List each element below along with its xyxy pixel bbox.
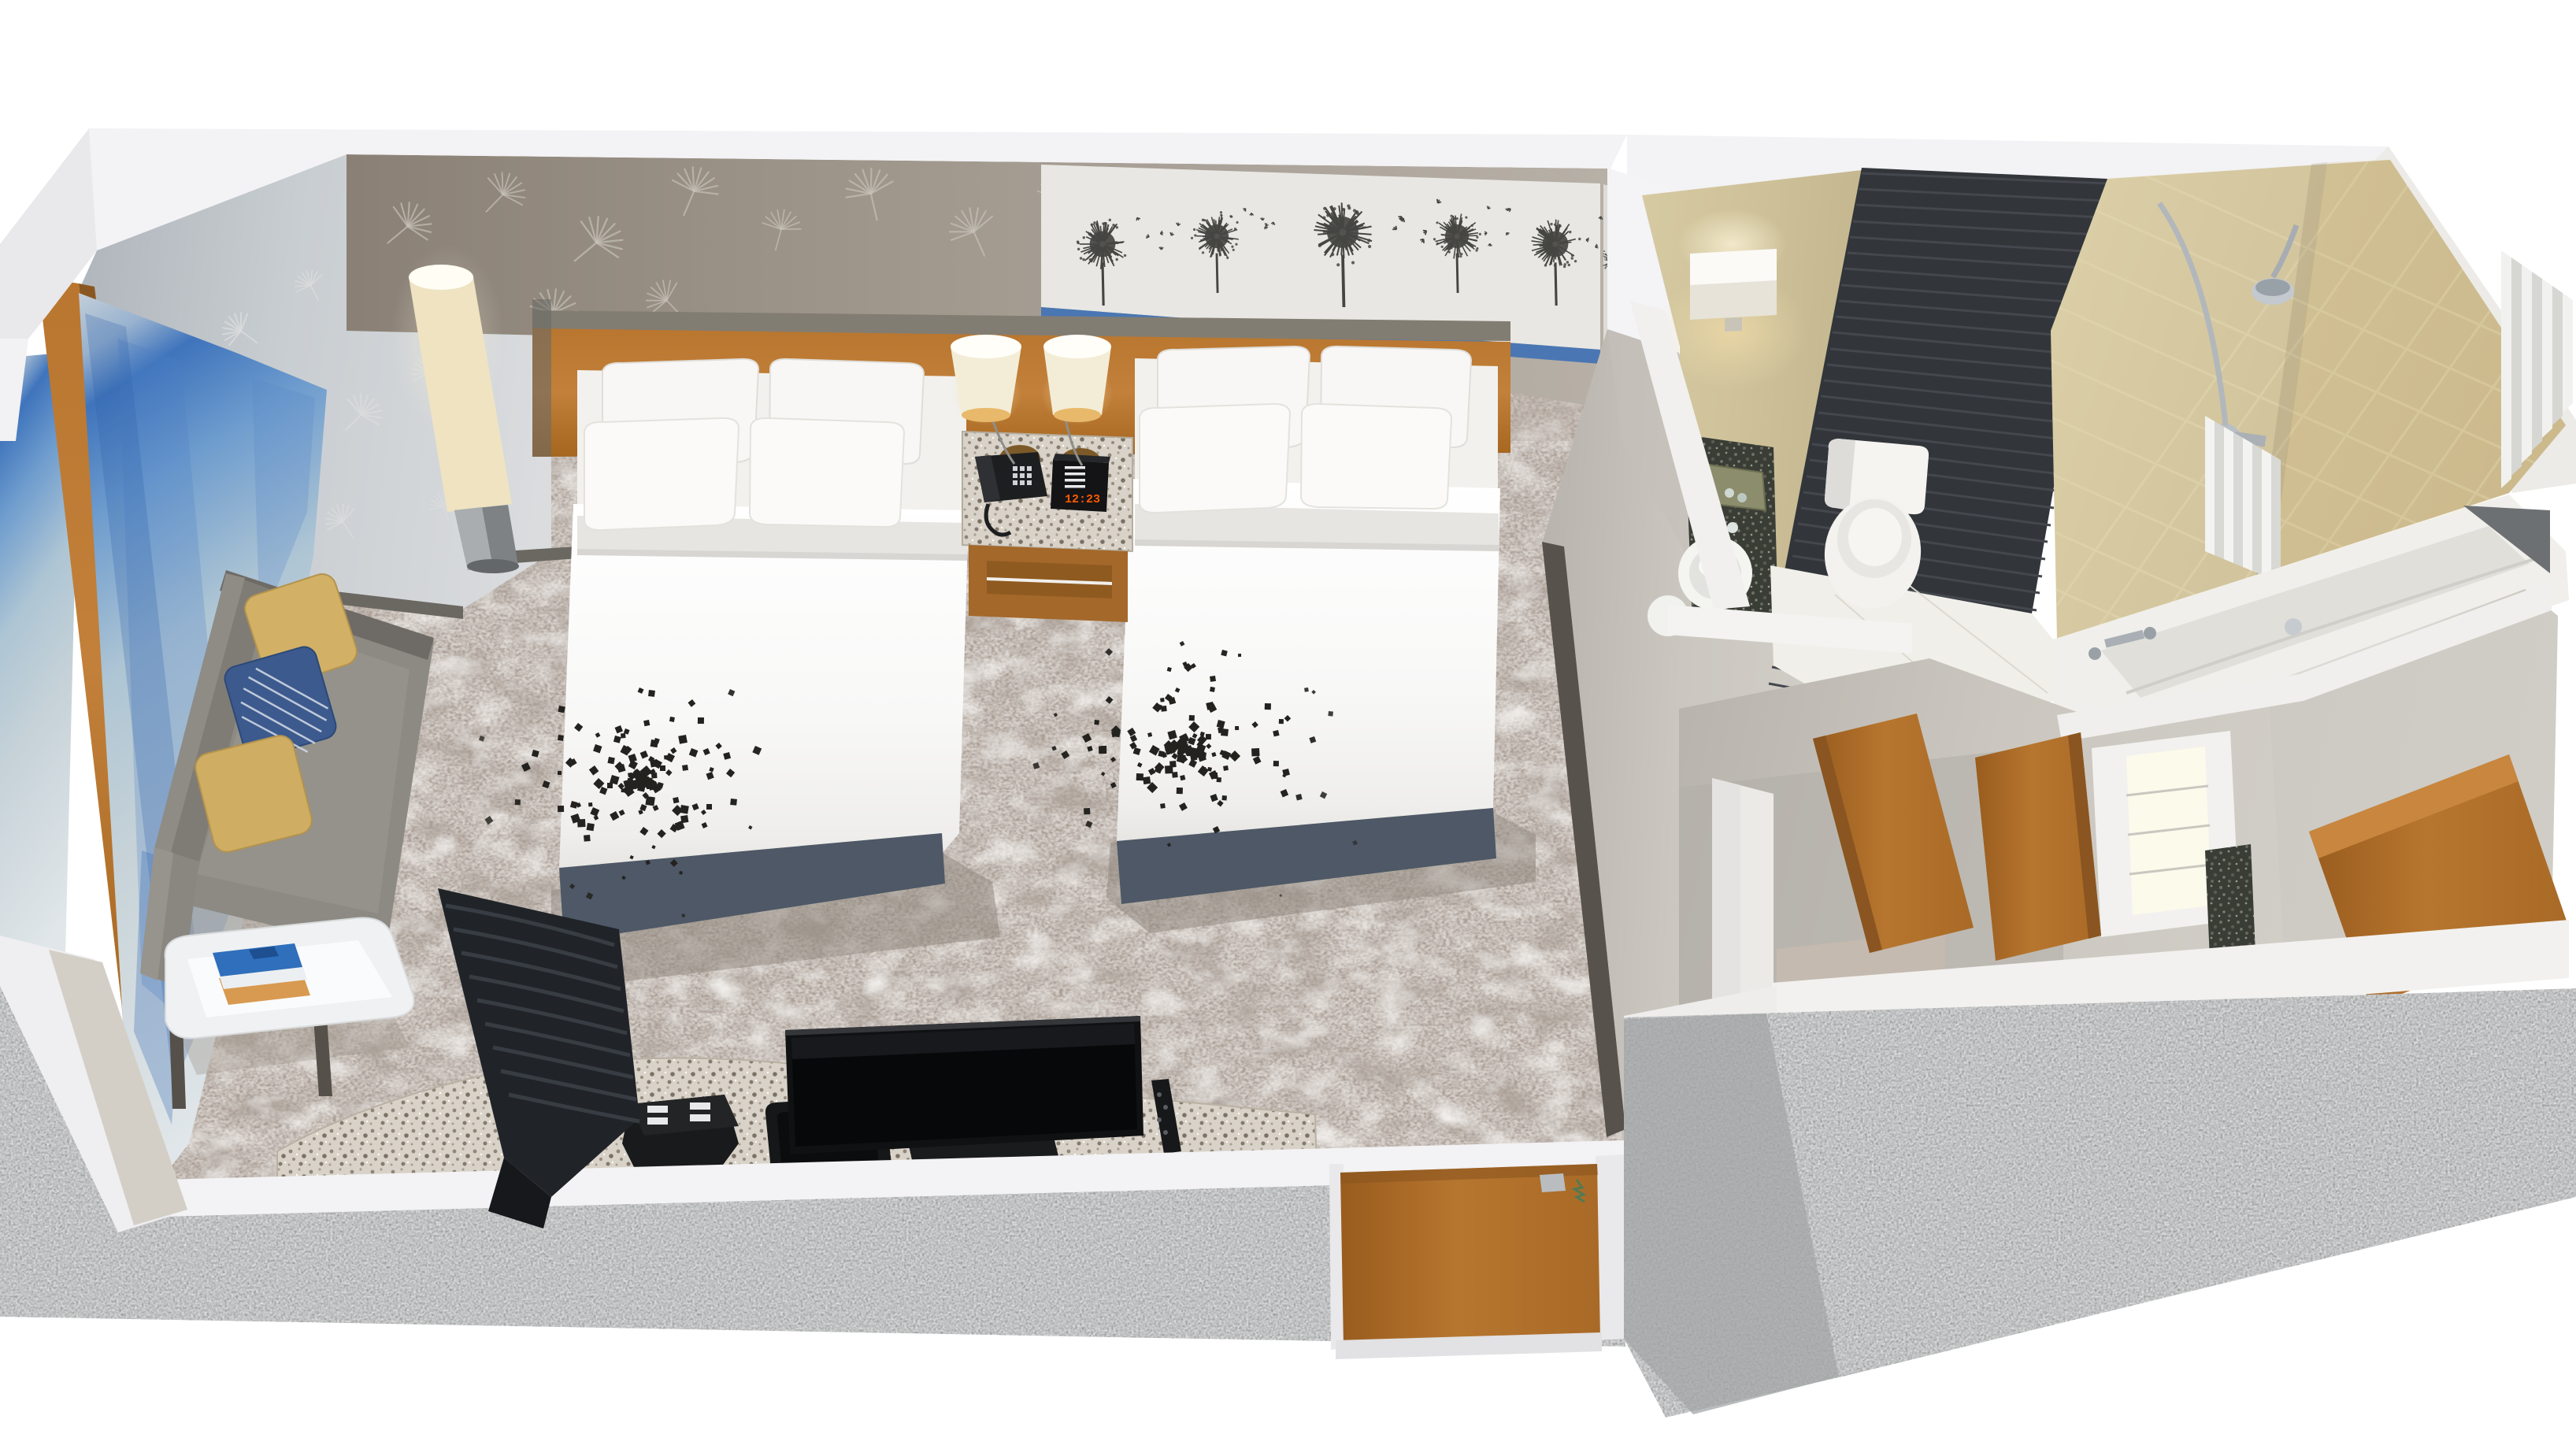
svg-text:12:23: 12:23 (1065, 493, 1100, 506)
